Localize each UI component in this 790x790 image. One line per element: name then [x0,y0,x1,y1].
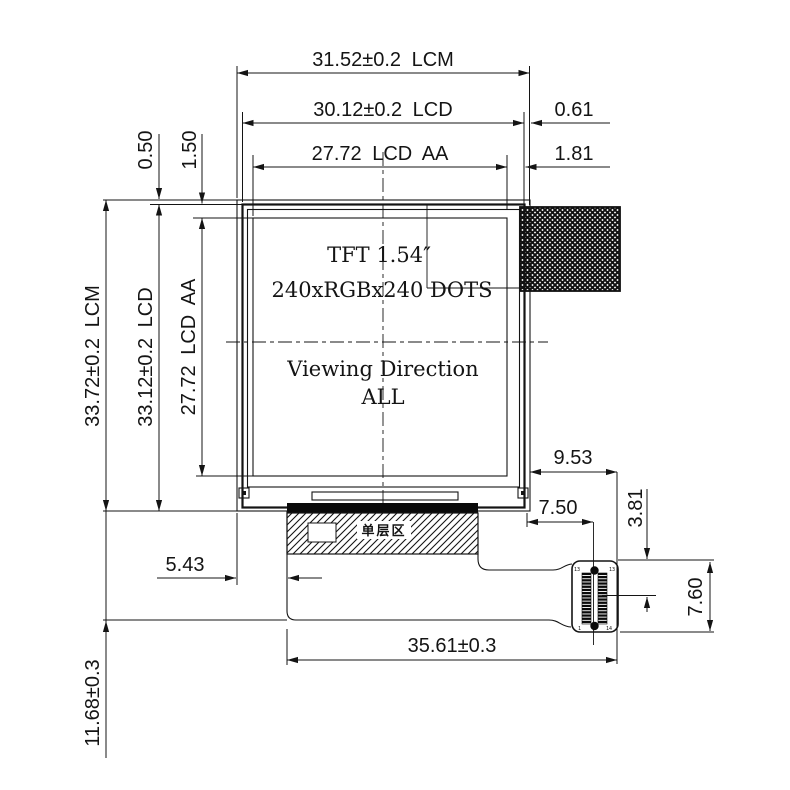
connector-pin-row-right [598,573,607,624]
dim-lcd-aa-right-gap: 1.81 [555,143,594,165]
viewing-direction-value: ALL [360,385,404,409]
dim-lcm-lcd-top-gap: 0.50 [135,131,157,170]
dim-lcm-height: 33.72±0.2 LCM [82,285,104,427]
dim-aa-height: 27.72 LCD AA [178,278,200,415]
dim-lcd-width: 30.12±0.2 LCD [313,99,452,121]
dim-lcd-aa-top-gap: 1.50 [179,131,201,170]
pin-number-top-left: 13 [574,567,580,573]
pin-number-bottom-right: 14 [606,626,612,632]
panel-resolution-label: 240xRGBx240 DOTS [272,278,493,302]
crosshatch-double-layer-region [520,207,620,291]
corner-mark-right-dot [521,491,525,495]
dim-fpc-total-width: 35.61±0.3 [408,635,497,657]
dim-connector-height: 7.60 [685,578,707,617]
engineering-drawing-page: TFT 1.54″ 240xRGBx240 DOTS Viewing Direc… [0,0,790,790]
viewing-direction-label: Viewing Direction [286,357,478,381]
dim-lcm-width: 31.52±0.2 LCM [312,49,454,71]
corner-mark-left-dot [242,491,246,495]
dim-connector-right-offset: 9.53 [554,447,593,469]
fpc-label-box [308,523,336,542]
dim-fpc-left-offset: 5.43 [166,554,205,576]
pin-number-bottom-left: 1 [578,626,581,632]
dim-connector-pin-offset: 3.81 [625,489,647,528]
panel-size-label: TFT 1.54″ [327,243,431,267]
pin-number-top-right: 13 [609,567,615,573]
connector-boss-bottom [590,622,598,630]
single-layer-label: 单层区 [361,523,406,539]
dim-connector-center-offset: 7.50 [539,497,578,519]
connector-pin-row-left [582,573,591,624]
lcd-module-outline-drawing: TFT 1.54″ 240xRGBx240 DOTS Viewing Direc… [0,0,790,790]
dim-lcd-height: 33.12±0.2 LCD [135,287,157,426]
fpc-bonding-bar [287,503,478,513]
dim-lcm-lcd-right-gap: 0.61 [555,99,594,121]
dim-fpc-bottom-drop: 11.68±0.3 [82,659,104,746]
connector-boss-top [590,566,598,574]
dim-aa-width: 27.72 LCD AA [312,143,449,165]
